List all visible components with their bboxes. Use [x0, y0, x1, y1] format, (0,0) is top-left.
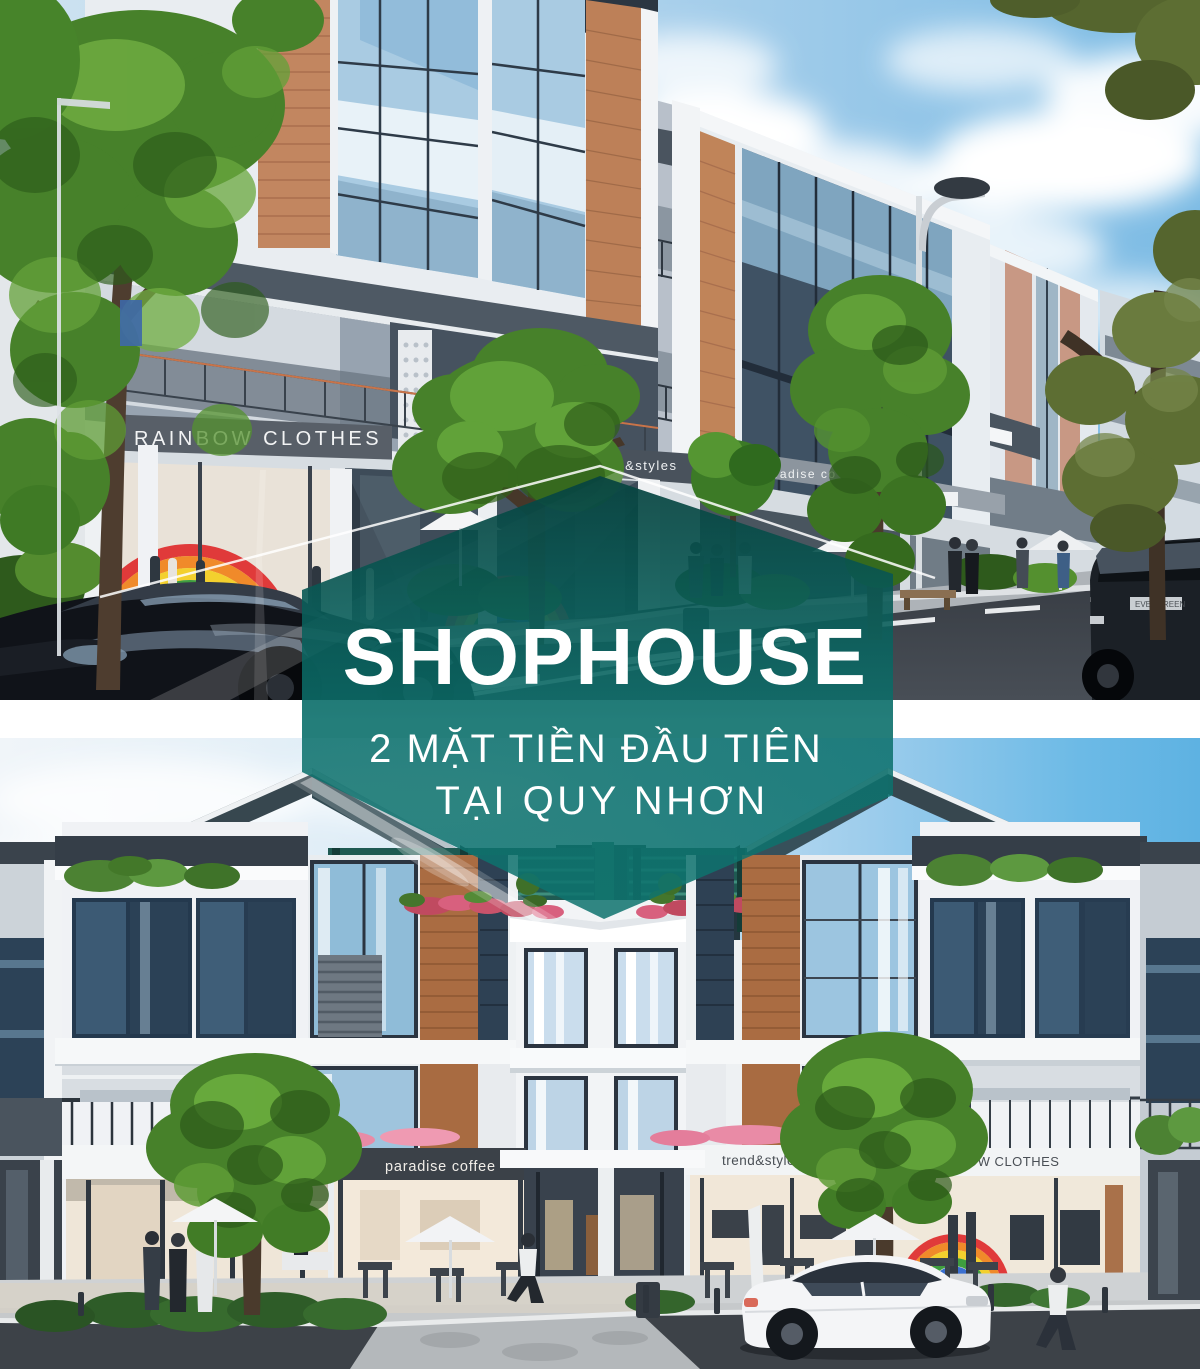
- svg-text:TẠI QUY NHƠN: TẠI QUY NHƠN: [435, 779, 768, 823]
- svg-text:RAINBOW CLOTHES: RAINBOW CLOTHES: [134, 428, 382, 450]
- svg-text:paradise coffee: paradise coffee: [385, 1159, 496, 1175]
- svg-text:SHOPHOUSE: SHOPHOUSE: [343, 612, 868, 701]
- svg-text:2 MẶT TIỀN ĐẦU TIÊN: 2 MẶT TIỀN ĐẦU TIÊN: [369, 725, 823, 771]
